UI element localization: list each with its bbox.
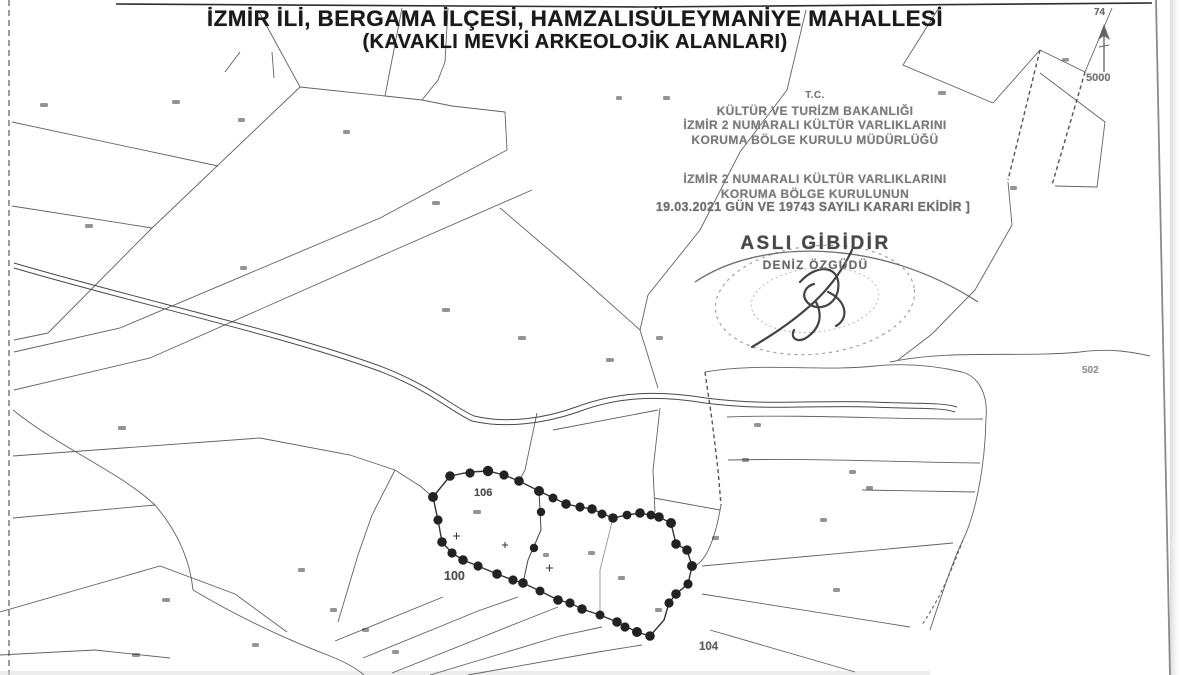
stamp-line-tc: T.C. xyxy=(640,89,990,104)
scanned-map-page: İZMİR İLİ, BERGAMA İLÇESİ, HAMZALISÜLEYM… xyxy=(0,0,1200,675)
stamp-line-board4: KORUMA BÖLGE KURULUNUN xyxy=(640,187,990,202)
map-title-line1: İZMİR İLİ, BERGAMA İLÇESİ, HAMZALISÜLEYM… xyxy=(125,6,1025,32)
stamp-line-ministry: KÜLTÜR VE TURİZM BAKANLIĞI xyxy=(640,104,990,119)
decision-stamp-block: İZMİR 2 NUMARALI KÜLTÜR VARLIKLARINI KOR… xyxy=(640,172,990,201)
parcel-label-502: 502 xyxy=(1082,365,1099,376)
survey-cross-marks xyxy=(453,533,553,572)
parcel-label-104: 104 xyxy=(699,641,718,653)
stamp-line-board1: İZMİR 2 NUMARALI KÜLTÜR VARLIKLARINI xyxy=(640,118,990,133)
certifying-officer-name: DENİZ ÖZGÜDÜ xyxy=(698,258,933,272)
cadastral-map-drawing xyxy=(0,0,1200,675)
stamp-line-board2: KORUMA BÖLGE KURULU MÜDÜRLÜĞÜ xyxy=(640,133,990,148)
ministry-stamp-block: T.C. KÜLTÜR VE TURİZM BAKANLIĞI İZMİR 2 … xyxy=(640,89,990,147)
north-arrow-top-label: 74 xyxy=(1094,7,1105,18)
road xyxy=(14,263,957,425)
stamp-line-board3: İZMİR 2 NUMARALI KÜLTÜR VARLIKLARINI xyxy=(640,172,990,187)
certified-copy-stamp-text: ASLI GİBİDİR xyxy=(698,233,933,255)
decision-date-line: 19.03.2021 GÜN VE 19743 SAYILI KARARI EK… xyxy=(572,200,1054,214)
map-scale-label: 5000 xyxy=(1086,72,1110,84)
parcel-label-100: 100 xyxy=(444,569,465,583)
north-arrow xyxy=(1098,24,1110,72)
map-title-line2: (KAVAKLI MEVKİ ARKEOLOJİK ALANLARI) xyxy=(125,31,1025,54)
parcel-label-106: 106 xyxy=(474,487,492,499)
stamp-seal xyxy=(695,236,978,364)
